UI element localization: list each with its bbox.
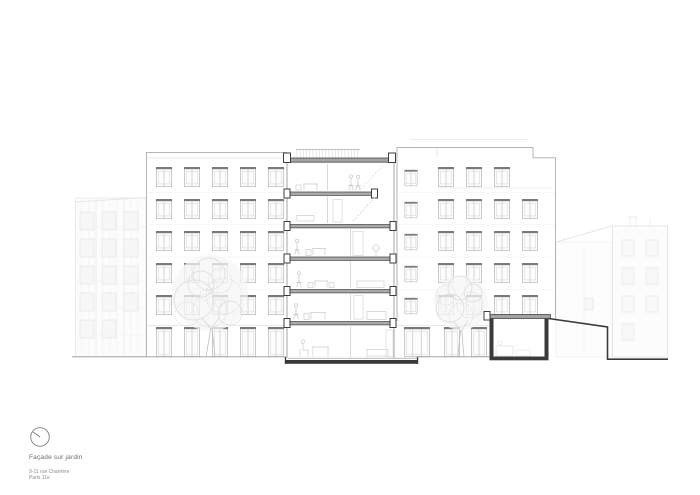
roof-railing bbox=[296, 150, 360, 158]
tree-left bbox=[172, 255, 248, 357]
drawing-sheet: Façade sur jardin 9-11 rue Charrière Par… bbox=[0, 0, 700, 495]
drawing-title: Façade sur jardin bbox=[29, 454, 83, 462]
north-arrow-icon bbox=[29, 426, 51, 448]
address-line-2: Paris 11e bbox=[29, 475, 83, 481]
elevation-drawing bbox=[0, 0, 700, 495]
neighbor-building-left bbox=[76, 198, 147, 358]
title-block: Façade sur jardin 9-11 rue Charrière Par… bbox=[29, 426, 83, 481]
ground-slab-cut bbox=[286, 357, 418, 364]
neighbor-building-right bbox=[556, 217, 668, 357]
annex-room-cut bbox=[484, 312, 551, 361]
